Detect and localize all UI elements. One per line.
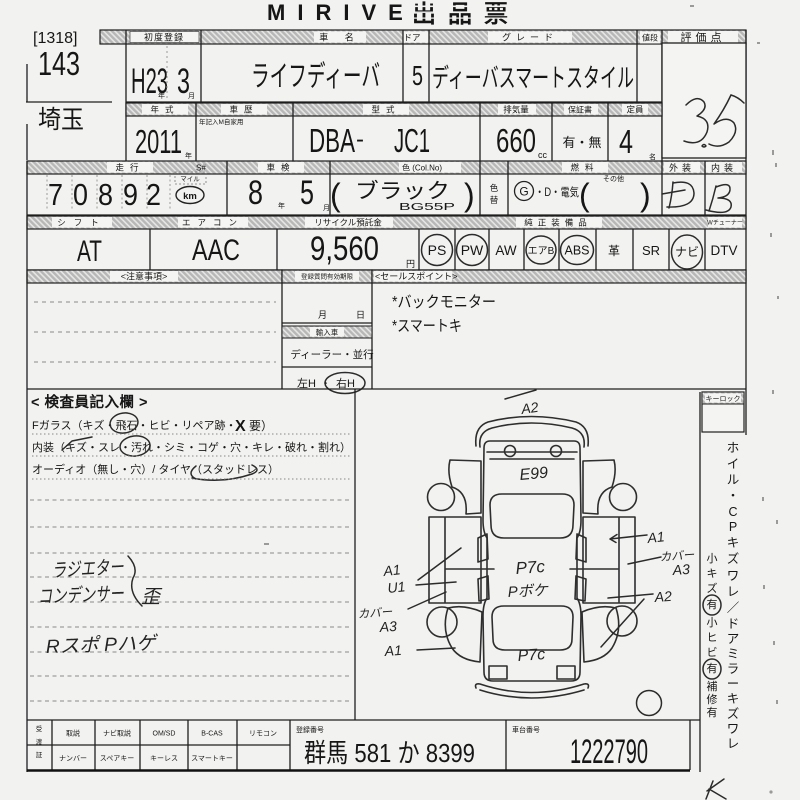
svg-text:P7c: P7c — [515, 557, 546, 578]
svg-text:評価点: 評価点 — [681, 30, 726, 44]
svg-text:AT: AT — [77, 235, 102, 268]
svg-text:車歴: 車歴 — [229, 105, 258, 115]
svg-text:PS: PS — [428, 242, 447, 258]
svg-text:スペアキー: スペアキー — [100, 755, 135, 763]
svg-text:143: 143 — [38, 45, 80, 82]
svg-text:Pボケ: Pボケ — [507, 582, 549, 601]
svg-text:有・無: 有・無 — [562, 135, 601, 150]
svg-text:MIRIVE: MIRIVE — [267, 0, 415, 25]
svg-text:キーロック: キーロック — [706, 395, 741, 403]
svg-text:): ) — [640, 177, 651, 213]
svg-text:車 名: 車 名 — [319, 32, 361, 43]
svg-text:取説: 取説 — [66, 729, 80, 738]
svg-text:年: 年 — [185, 151, 192, 160]
svg-text:年式: 年式 — [150, 105, 179, 115]
svg-text:コンデンサー: コンデンサー — [37, 583, 124, 608]
svg-text:輸入車: 輸入車 — [316, 327, 339, 337]
svg-text:DBA: DBA — [309, 122, 355, 159]
svg-text:*スマートキ: *スマートキ — [392, 318, 462, 335]
svg-text:7: 7 — [48, 177, 63, 212]
svg-text:登録番号: 登録番号 — [296, 725, 324, 734]
svg-text:色: 色 — [490, 183, 499, 193]
svg-text:-: - — [356, 126, 364, 153]
svg-text:月: 月 — [323, 204, 330, 212]
svg-text:A3: A3 — [671, 561, 690, 578]
svg-text:0: 0 — [73, 177, 88, 212]
svg-text:ディーバスマートスタイル: ディーバスマートスタイル — [432, 63, 634, 93]
svg-text:内装: 内装 — [711, 162, 737, 173]
svg-text:外装: 外装 — [669, 162, 695, 173]
svg-text:A2: A2 — [653, 588, 672, 605]
svg-text:群馬 581 か 8399: 群馬 581 か 8399 — [304, 738, 475, 768]
svg-text:(: ( — [579, 177, 590, 213]
svg-text:年: 年 — [158, 91, 165, 100]
svg-text:9,560: 9,560 — [310, 230, 379, 268]
svg-text:8: 8 — [98, 177, 113, 212]
svg-text:SR: SR — [642, 243, 660, 258]
svg-text:証: 証 — [36, 750, 43, 759]
svg-text:左H: 左H — [297, 377, 316, 390]
svg-text:2011: 2011 — [135, 123, 182, 160]
svg-text:定員: 定員 — [626, 105, 644, 115]
svg-text:ディーラー・並行: ディーラー・並行 — [290, 348, 374, 361]
svg-text:8: 8 — [248, 174, 263, 212]
svg-text:660: 660 — [496, 122, 536, 159]
svg-text:要）: 要） — [249, 419, 273, 433]
svg-text:スマートキー: スマートキー — [191, 755, 233, 763]
svg-text:Rスポ Pハゲ: Rスポ Pハゲ — [45, 632, 159, 658]
svg-text:日: 日 — [356, 310, 365, 320]
svg-text:エアコン: エアコン — [182, 218, 244, 228]
svg-text:リモコン: リモコン — [249, 730, 277, 738]
svg-text:E99: E99 — [519, 465, 549, 484]
svg-text:ラジエター: ラジエター — [51, 557, 125, 582]
svg-text:キーレス: キーレス — [150, 755, 178, 763]
svg-text:G: G — [519, 185, 528, 199]
svg-text:走行: 走行 — [115, 163, 144, 173]
svg-text:燃料: 燃料 — [570, 163, 599, 173]
svg-text:月: 月 — [318, 310, 327, 320]
svg-text:補修有: 補修有 — [707, 680, 718, 719]
svg-text:ドア: ドア — [403, 33, 420, 43]
svg-text:車台番号: 車台番号 — [512, 725, 540, 734]
svg-text:AAC: AAC — [192, 234, 240, 267]
svg-text:替: 替 — [490, 195, 499, 205]
svg-text:A1: A1 — [383, 642, 402, 659]
svg-text:リサイクル預託金: リサイクル預託金 — [314, 218, 382, 228]
svg-text:月: 月 — [188, 92, 195, 100]
svg-text:ナビ: ナビ — [675, 245, 699, 259]
svg-text:円: 円 — [406, 259, 415, 269]
svg-text:<セールスポイント>: <セールスポイント> — [375, 272, 458, 282]
svg-text:A1: A1 — [646, 528, 666, 546]
svg-text:型式: 型式 — [371, 105, 400, 115]
svg-text:X: X — [235, 418, 246, 435]
svg-text:5: 5 — [412, 60, 423, 91]
svg-text:OM/SD: OM/SD — [153, 731, 176, 738]
svg-text:埼玉: 埼玉 — [38, 106, 84, 134]
svg-text:< 検査員記入欄 >: < 検査員記入欄 > — [31, 393, 148, 411]
svg-text:AW: AW — [495, 243, 517, 258]
svg-text:その他: その他 — [603, 174, 624, 183]
svg-text:(: ( — [330, 177, 341, 213]
svg-text:U1: U1 — [387, 578, 406, 596]
svg-text:ブラック: ブラック — [355, 180, 450, 203]
svg-text:*バックモニター: *バックモニター — [392, 293, 496, 311]
svg-text:): ) — [464, 177, 475, 213]
svg-text:初度登録: 初度登録 — [144, 32, 184, 43]
svg-text:登録質問有効期限: 登録質問有効期限 — [301, 272, 354, 281]
svg-text:9: 9 — [123, 177, 138, 212]
svg-text:内装（キズ・スレ・汚れ・シミ・コゲ・穴・キレ・破れ・割れ）: 内装（キズ・スレ・汚れ・シミ・コゲ・穴・キレ・破れ・割れ） — [32, 440, 351, 454]
svg-text:年記入M自家用: 年記入M自家用 — [199, 117, 243, 126]
svg-text:受: 受 — [36, 724, 43, 733]
svg-text:5: 5 — [300, 174, 314, 212]
svg-text:純正装備品: 純正装備品 — [524, 218, 592, 228]
svg-text:ナンバー: ナンバー — [59, 755, 87, 763]
svg-text:4: 4 — [619, 123, 633, 160]
svg-text:右H: 右H — [336, 376, 355, 390]
svg-text:年: 年 — [278, 201, 285, 210]
svg-text:B-CAS: B-CAS — [201, 731, 223, 738]
svg-text:P7c: P7c — [517, 646, 546, 665]
svg-text:歪: 歪 — [141, 587, 163, 608]
svg-text:S#: S# — [196, 164, 206, 173]
svg-text:革: 革 — [608, 244, 620, 258]
svg-text:シフト: シフト — [57, 218, 107, 228]
svg-text:・D・電気: ・D・電気 — [535, 185, 579, 199]
svg-text:ABS: ABS — [564, 244, 589, 258]
svg-text:DTV: DTV — [711, 243, 738, 258]
svg-text:2: 2 — [146, 177, 161, 212]
svg-text:色 (Col.No): 色 (Col.No) — [402, 163, 442, 173]
svg-text:マイル: マイル — [180, 175, 200, 183]
svg-text:km: km — [183, 191, 197, 202]
svg-text:車検: 車検 — [266, 163, 295, 173]
svg-text:ライフディーバ: ライフディーバ — [251, 60, 380, 93]
svg-text:保証書: 保証書 — [568, 105, 592, 115]
svg-text:A2: A2 — [519, 399, 539, 417]
svg-text:グレード: グレード — [502, 32, 558, 43]
svg-text:PW: PW — [461, 242, 484, 258]
svg-text:ナビ取説: ナビ取説 — [103, 729, 131, 738]
svg-text:名: 名 — [649, 152, 656, 161]
svg-text:値段: 値段 — [642, 33, 658, 43]
svg-text:排気量: 排気量 — [503, 105, 529, 115]
svg-text:エアB: エアB — [528, 246, 555, 257]
svg-text:BG55P: BG55P — [399, 202, 456, 213]
svg-text:cc: cc — [538, 150, 548, 160]
svg-text:オーディオ（無し・穴）/ タイヤ（スタッドレス）: オーディオ（無し・穴）/ タイヤ（スタッドレス） — [32, 462, 279, 476]
svg-text:A3: A3 — [378, 618, 397, 635]
svg-text:Wチューナー: Wチューナー — [707, 220, 743, 227]
svg-text:<注意事項>: <注意事項> — [121, 271, 168, 282]
svg-text:A1: A1 — [382, 561, 402, 579]
svg-text:渡: 渡 — [36, 737, 43, 746]
svg-text:1222790: 1222790 — [570, 733, 648, 771]
svg-text:JC1: JC1 — [394, 122, 430, 159]
svg-text:出品票: 出品票 — [412, 1, 520, 28]
